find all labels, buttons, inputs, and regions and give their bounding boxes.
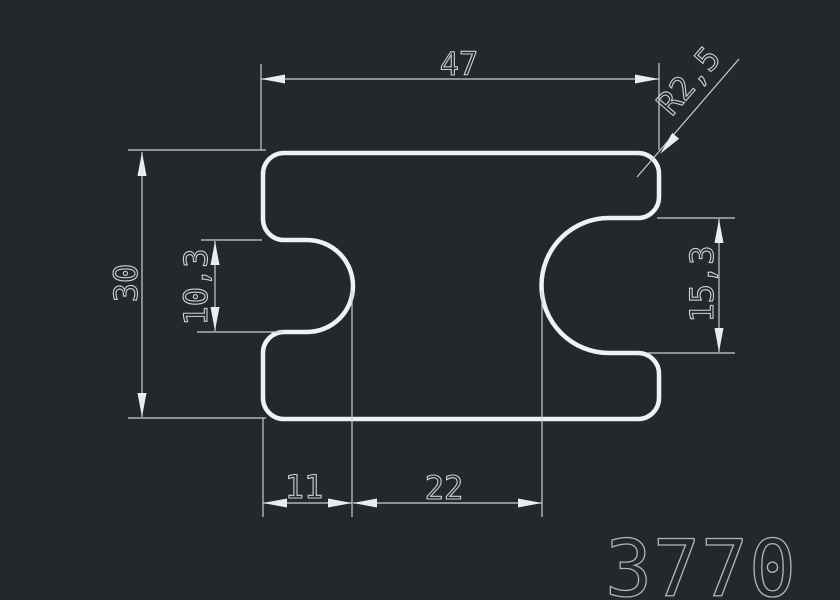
- drawing-canvas: 47 R2,5 30 10,3 15,3 11 22 3770: [0, 0, 840, 600]
- dim-label-left-notch-depth: 11: [285, 468, 324, 506]
- dim-label-overall-width: 47: [440, 45, 479, 83]
- part-number: 3770: [605, 525, 797, 600]
- dim-label-left-notch-height: 10,3: [177, 248, 215, 325]
- dim-label-right-notch-height: 15,3: [683, 245, 721, 322]
- dim-label-overall-height: 30: [107, 264, 145, 303]
- dim-label-inner-span: 22: [425, 469, 464, 507]
- cad-viewport: 47 R2,5 30 10,3 15,3 11 22 3770: [0, 0, 840, 600]
